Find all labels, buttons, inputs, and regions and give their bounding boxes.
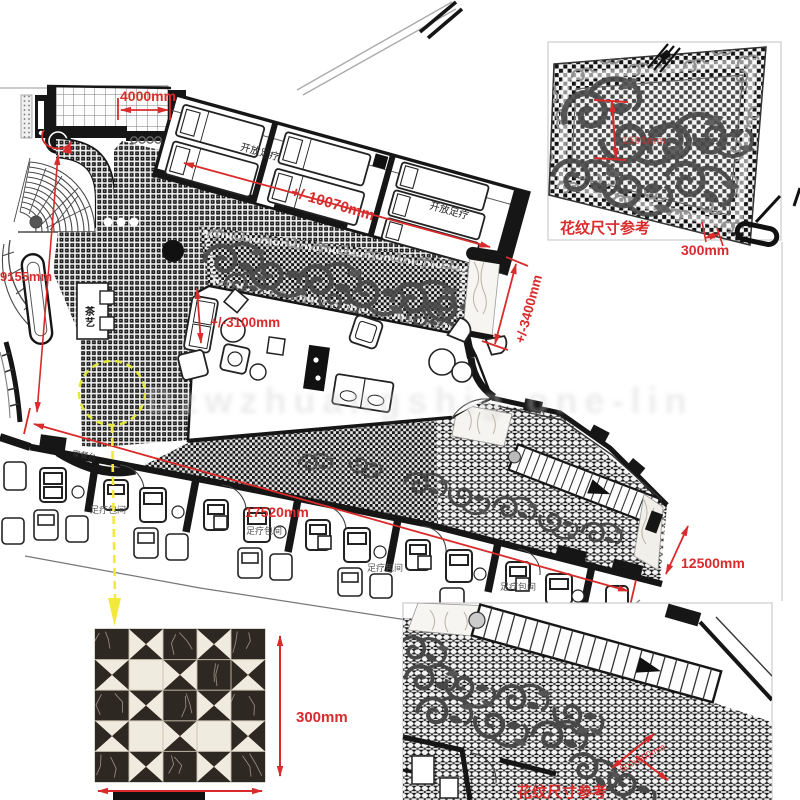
svg-text:花纹尺寸参考: 花纹尺寸参考	[560, 219, 650, 237]
svg-text:艺: 艺	[85, 316, 95, 329]
svg-text:足疗包间: 足疗包间	[246, 525, 282, 536]
svg-text:Dzwzhuangshig one-lin: Dzwzhuangshig one-lin	[147, 380, 694, 421]
svg-text:1500mm: 1500mm	[622, 135, 666, 147]
svg-text:足疗包间: 足疗包间	[367, 562, 403, 573]
svg-text:300mm: 300mm	[681, 242, 729, 258]
svg-text:300mm: 300mm	[296, 709, 348, 726]
svg-text:足疗包间: 足疗包间	[90, 504, 126, 515]
svg-text:17520mm: 17520mm	[245, 504, 309, 520]
svg-text:+/-3100mm: +/-3100mm	[210, 315, 280, 330]
svg-text:足疗包间: 足疗包间	[500, 581, 536, 592]
svg-text:9155mm: 9155mm	[0, 269, 52, 284]
svg-text:4000mm: 4000mm	[120, 88, 176, 104]
svg-text:茶: 茶	[84, 305, 96, 318]
svg-text:花纹尺寸参考: 花纹尺寸参考	[517, 783, 607, 800]
svg-text:12500mm: 12500mm	[681, 555, 745, 571]
